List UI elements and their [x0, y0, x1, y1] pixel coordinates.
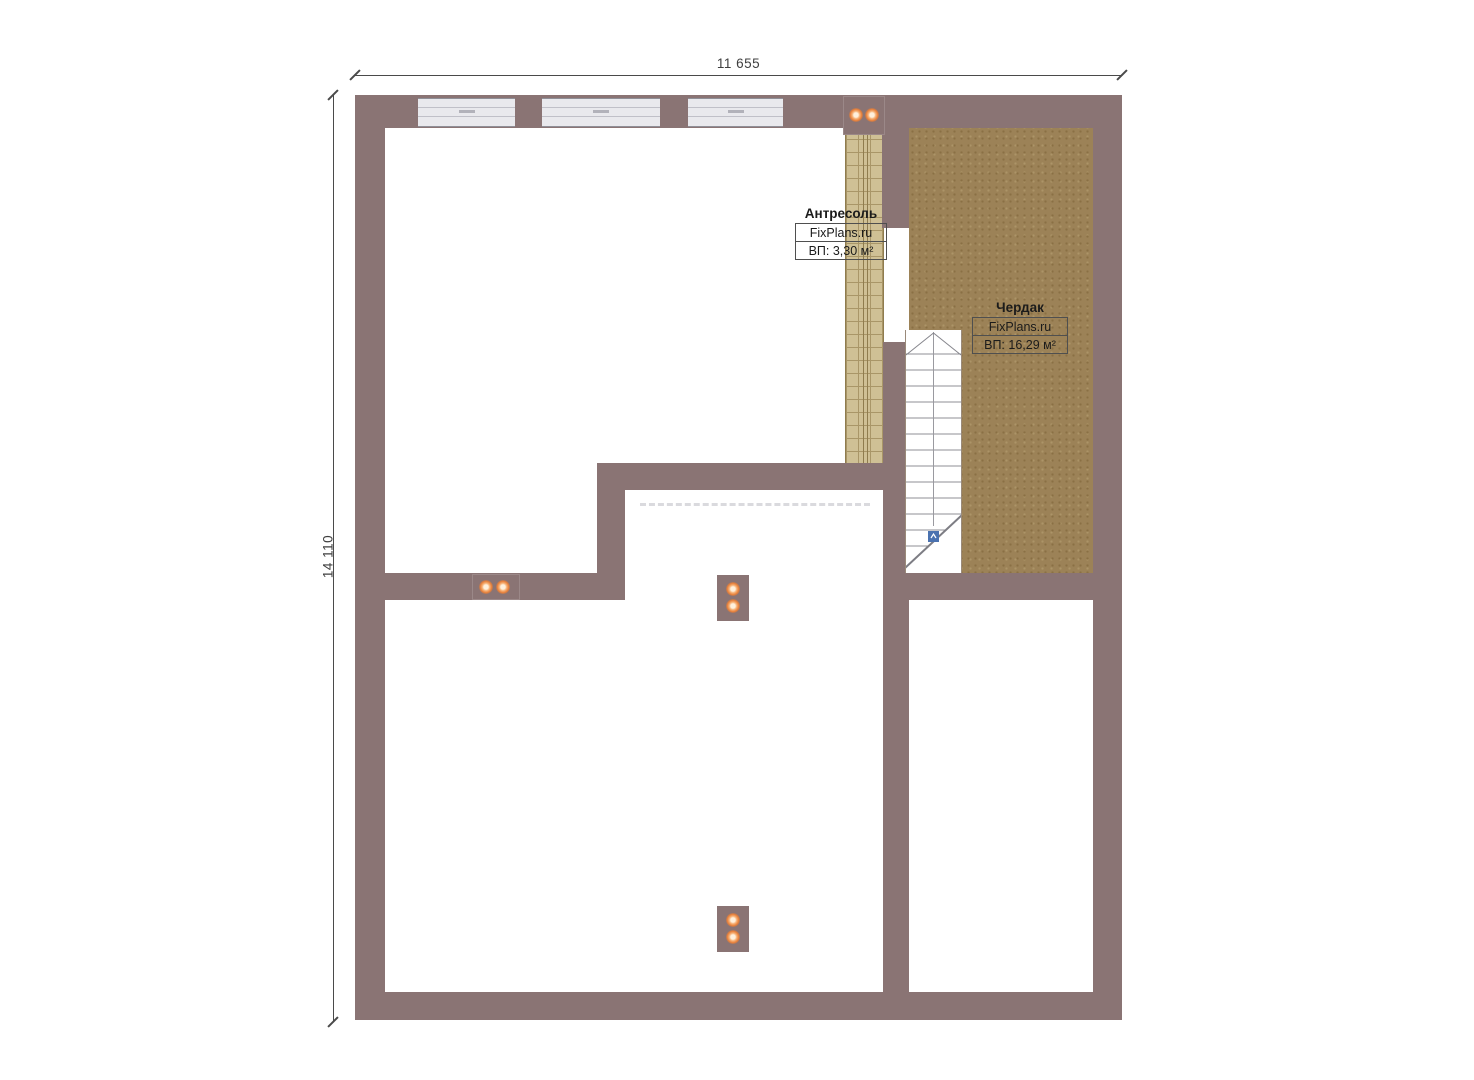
- spotlight-icon: [849, 108, 863, 122]
- room-bottom-right: [909, 600, 1093, 992]
- wall-attic-bottom: [883, 573, 1093, 600]
- dimension-left-label: 14 110: [321, 517, 336, 597]
- wall-mid-horizontal: [597, 463, 883, 490]
- staircase: [905, 330, 962, 575]
- room-mezzanine-floor: [845, 128, 884, 465]
- window-3: [688, 98, 783, 127]
- dimension-line-top: [355, 75, 1122, 76]
- room-bottom-left: [385, 600, 883, 992]
- column-1: [717, 575, 749, 621]
- spotlight-icon: [479, 580, 493, 594]
- stair-direction-marker: [928, 531, 939, 542]
- room-label-attic: Чердак FixPlans.ru ВП: 16,29 м²: [972, 300, 1068, 354]
- window-sash-tick: [459, 110, 475, 113]
- dimension-top-label: 11 655: [355, 56, 1122, 71]
- room-title: Чердак: [972, 300, 1068, 315]
- window-sash-tick: [593, 110, 609, 113]
- spotlight-icon: [726, 930, 740, 944]
- brand-box: FixPlans.ru: [972, 317, 1068, 336]
- area-box: ВП: 16,29 м²: [972, 335, 1068, 354]
- wall-bottom: [355, 992, 1122, 1020]
- ceiling-light-block-top: [843, 96, 885, 135]
- beam-dashed-line: [640, 503, 870, 506]
- window-sash-tick: [728, 110, 744, 113]
- window-2: [542, 98, 660, 127]
- ceiling-light-block-left: [472, 574, 520, 600]
- spotlight-icon: [726, 913, 740, 927]
- wall-left: [355, 95, 385, 992]
- brand-box: FixPlans.ru: [795, 223, 887, 242]
- wall-stair-left: [883, 342, 905, 573]
- window-1: [418, 98, 515, 127]
- column-2: [717, 906, 749, 952]
- wall-center-vertical: [883, 573, 909, 992]
- spotlight-icon: [726, 582, 740, 596]
- mezzanine-centerline: [863, 128, 868, 465]
- spotlight-icon: [496, 580, 510, 594]
- spotlight-icon: [865, 108, 879, 122]
- plan-canvas: 11 655 14 110: [0, 0, 1474, 1080]
- spotlight-icon: [726, 599, 740, 613]
- area-box: ВП: 3,30 м²: [795, 241, 887, 260]
- room-label-mezzanine: Антресоль FixPlans.ru ВП: 3,30 м²: [795, 206, 887, 260]
- room-title: Антресоль: [795, 206, 887, 221]
- wall-right: [1093, 128, 1122, 992]
